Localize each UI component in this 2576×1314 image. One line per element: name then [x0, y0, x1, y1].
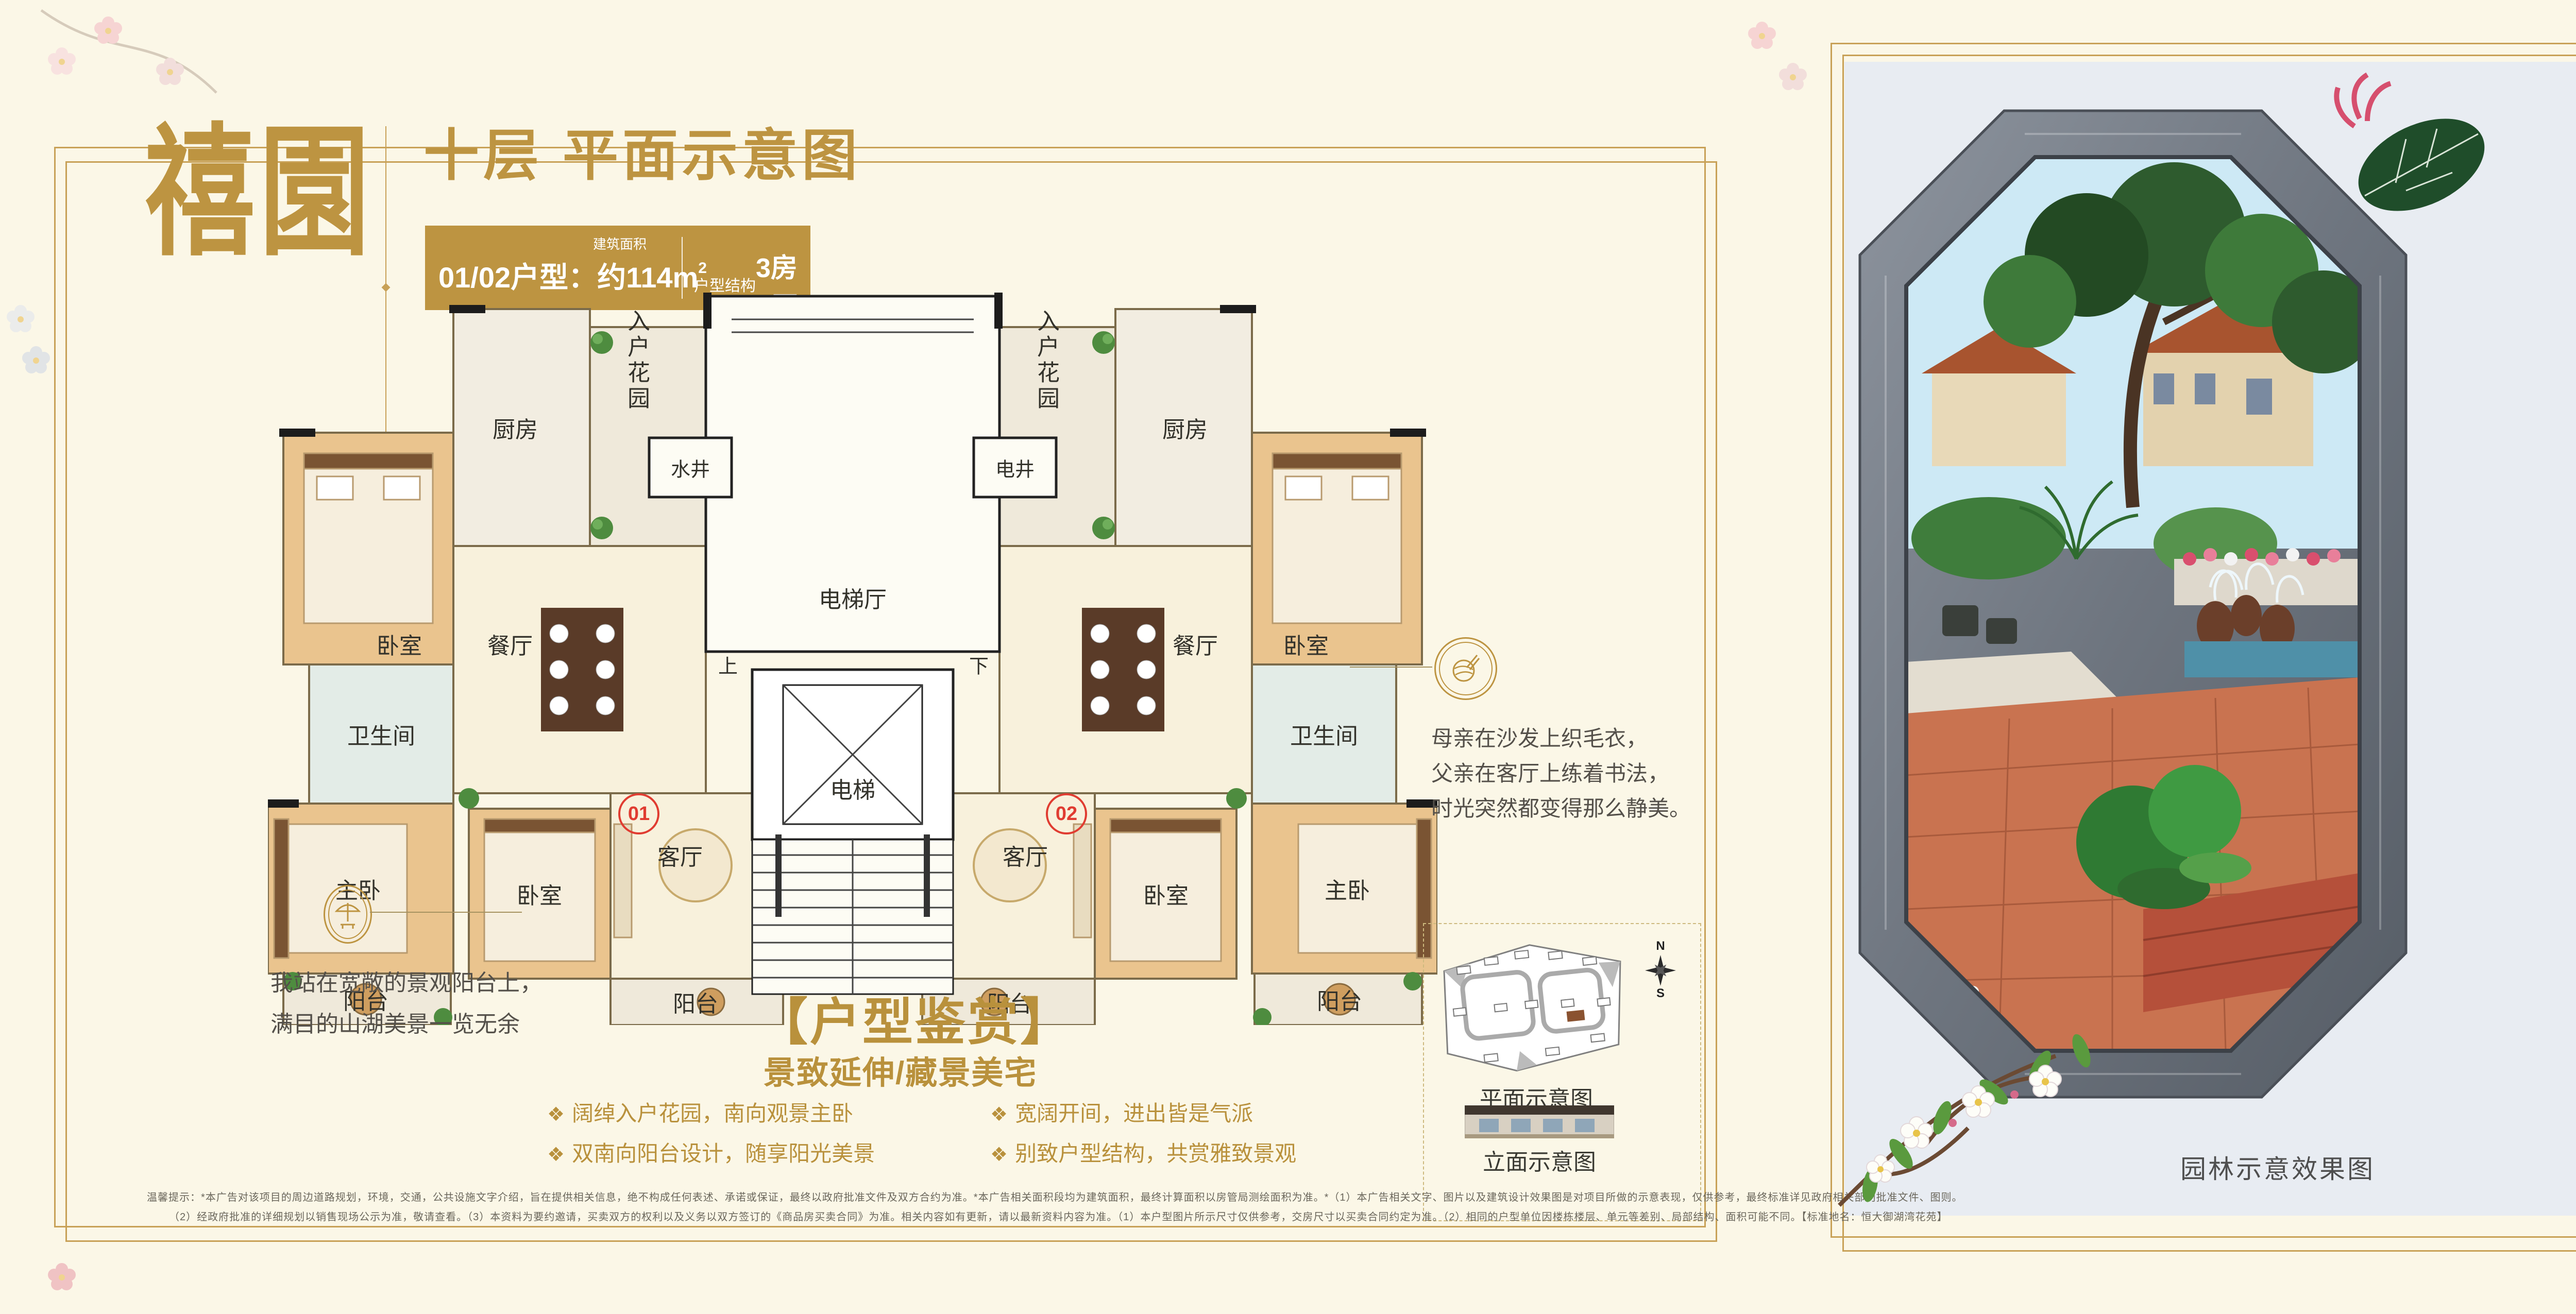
room-label-elevator: 电梯: [830, 772, 875, 805]
balcony-callout-line2: 满目的山湖美景一览无余: [270, 1005, 520, 1038]
unit-01-marker: 01: [619, 794, 658, 833]
elevation-drawing: [1465, 1105, 1614, 1138]
site-plan-drawing: [1426, 928, 1646, 1093]
appreciation-bullet-1: 阔绰入户花园，南向观景主卧: [547, 1096, 853, 1128]
unit-02-marker: 02: [1047, 794, 1086, 833]
garden-caption: 园林示意效果图: [2180, 1149, 2375, 1186]
room-label-elevator-hall: 电梯厅: [819, 581, 887, 614]
room-label-bedroom: 卧室: [377, 627, 422, 660]
area-note: 建筑面积: [593, 234, 647, 253]
room-label-bathroom: 卫生间: [347, 718, 415, 750]
room-label-balcony-b: 阳台: [673, 985, 718, 1018]
page-title: 十层 平面示意图: [423, 128, 861, 183]
leaf-decoration: [2318, 72, 2494, 237]
room-label-entry-garden: 入户花园: [620, 309, 653, 412]
highlighted-building: [1567, 1010, 1585, 1021]
room-label-bedroom2-r: 卧室: [1143, 877, 1189, 910]
appreciation-bullet-4: 别致户型结构，共赏雅致景观: [990, 1136, 1296, 1168]
diamond-bullet-icon: [990, 1101, 1015, 1125]
room-label-elec-well: 电井: [995, 454, 1035, 482]
appreciation-bullet-2: 双南向阳台设计，随享阳光美景: [547, 1136, 875, 1168]
diamond-bullet-icon: [547, 1101, 572, 1125]
floorplan-drawing: [268, 288, 1437, 1025]
room-label-balcony-a-r: 阳台: [1317, 983, 1362, 1016]
room-label-living: 客厅: [657, 839, 703, 872]
project-logo: 禧園: [144, 121, 374, 263]
compass-south: S: [1656, 986, 1665, 1000]
compass-north: N: [1656, 939, 1665, 953]
room-label-dining-r: 餐厅: [1173, 627, 1218, 660]
disclaimer-line1: 温馨提示：*本广告对该项目的周边道路规划，环境，交通，公共设施文字介绍，旨在提供…: [147, 1189, 1962, 1204]
family-callout-line2: 父亲在客厅上练着书法，: [1431, 756, 1669, 788]
room-label-kitchen-r: 厨房: [1162, 411, 1208, 444]
room-label-bedroom-r: 卧室: [1283, 627, 1329, 660]
family-callout-badge: [1434, 637, 1497, 700]
room-label-kitchen: 厨房: [493, 411, 538, 444]
room-label-dining: 餐厅: [487, 627, 533, 660]
diamond-bullet-icon: [990, 1141, 1015, 1166]
room-label-bedroom2: 卧室: [517, 877, 562, 910]
stairs-down-label: 下: [969, 651, 989, 679]
family-callout-line3: 时光突然都变得那么静美。: [1431, 791, 1691, 823]
appreciation-title: 【户型鉴赏】: [757, 981, 1073, 1054]
appreciation-subtitle: 景致延伸/藏景美宅: [764, 1047, 1037, 1093]
diamond-bullet-icon: [547, 1141, 572, 1166]
room-label-water-well: 水井: [671, 454, 710, 482]
balcony-callout-leader: [370, 912, 522, 913]
room-label-bathroom-r: 卫生间: [1290, 718, 1358, 750]
appreciation-bullet-3: 宽阔开间，进出皆是气派: [990, 1096, 1253, 1128]
family-callout-line1: 母亲在沙发上织毛衣，: [1431, 721, 1648, 753]
stairs-up-label: 上: [718, 651, 738, 679]
room-label-master-r: 主卧: [1325, 872, 1370, 905]
balcony-callout-badge: [324, 885, 372, 944]
elevation-label: 立面示意图: [1465, 1144, 1614, 1176]
family-callout-leader: [1350, 667, 1432, 668]
compass-icon: N S: [1637, 938, 1684, 1000]
brochure-spread: 禧園 十层 平面示意图 01/02户型：约114m2 建筑面积 户型结构 3房2…: [0, 0, 2576, 1314]
room-label-entry-garden-r: 入户花园: [1029, 309, 1062, 412]
balcony-callout-line1: 我站在宽敞的景观阳台上，: [270, 964, 543, 997]
blossom-branch-decoration: [1824, 814, 2164, 1221]
disclaimer-line2: （2）经政府批准的详细规划以销售现场公示为准，敬请查看。（3）本资料为要约邀请，…: [169, 1208, 1948, 1223]
room-label-living-r: 客厅: [1003, 839, 1048, 872]
